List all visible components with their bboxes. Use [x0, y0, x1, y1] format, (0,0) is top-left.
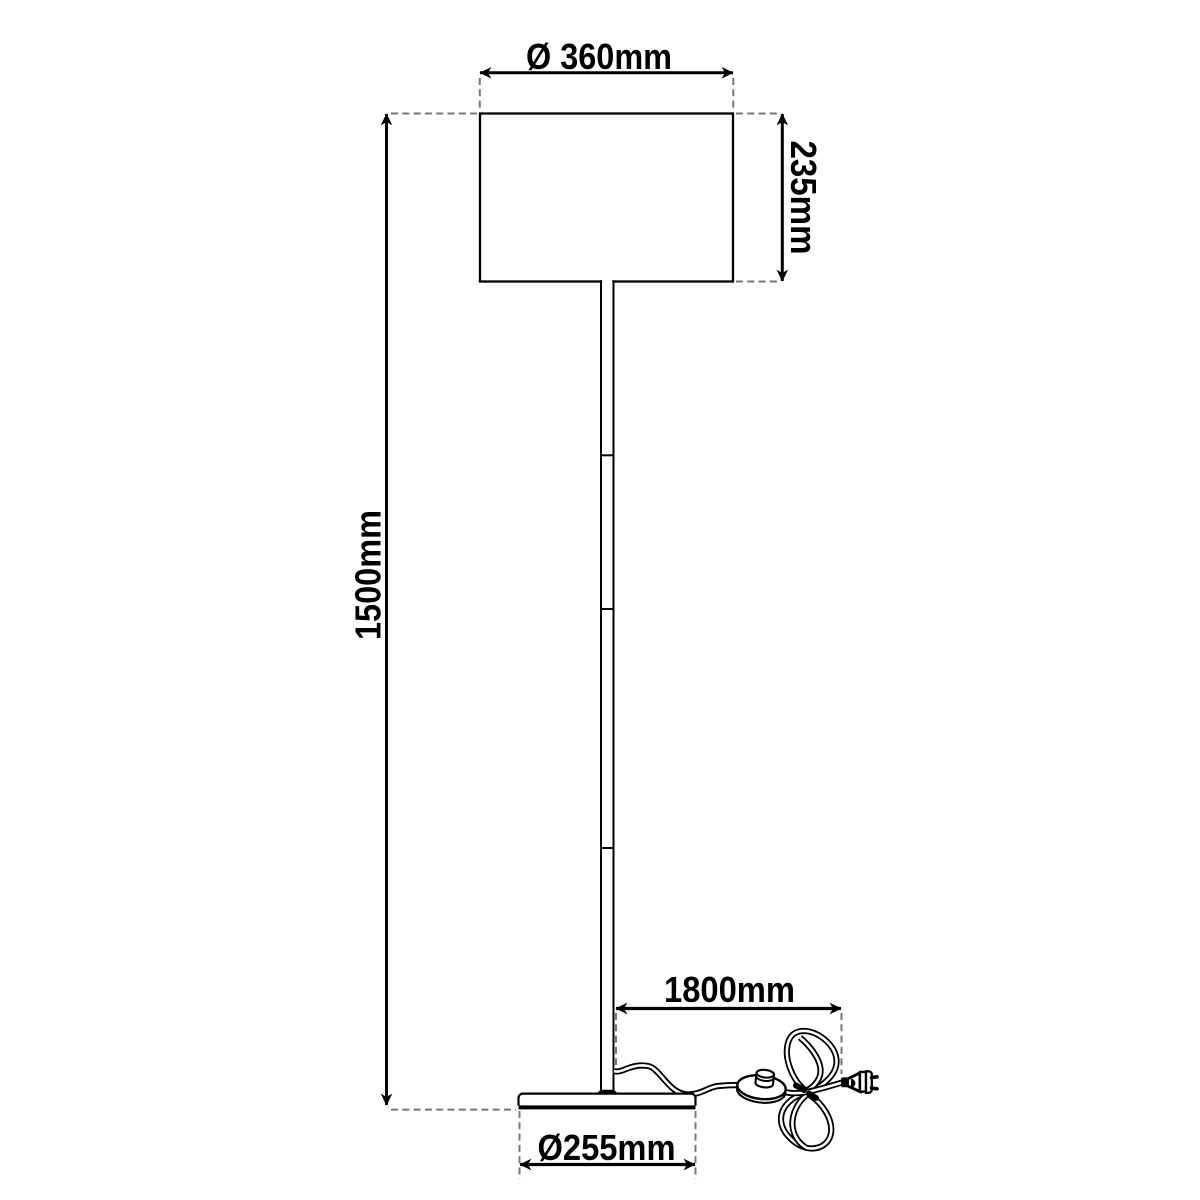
svg-text:1500mm: 1500mm — [348, 510, 389, 640]
svg-text:1800mm: 1800mm — [664, 969, 795, 1010]
svg-text:Ø255mm: Ø255mm — [538, 1127, 676, 1168]
svg-text:235mm: 235mm — [783, 141, 824, 255]
svg-text:Ø 360mm: Ø 360mm — [526, 36, 672, 77]
